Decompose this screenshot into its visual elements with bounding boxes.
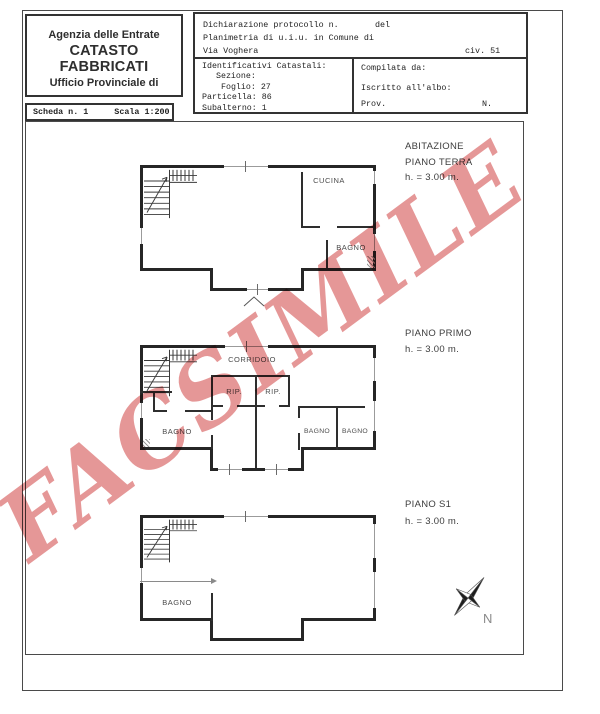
wall-segment xyxy=(140,165,143,228)
planimetria-label: Planimetria di u.i.u. in Comune di xyxy=(203,33,374,43)
sezione-field: Sezione: xyxy=(202,72,352,82)
window-tick xyxy=(229,464,230,475)
subalterno-field: Subalterno: 1 xyxy=(202,104,352,114)
wall-segment xyxy=(211,435,213,449)
wall-segment xyxy=(298,408,300,418)
protocol-label: Dichiarazione protocollo n. xyxy=(203,20,339,30)
floor-title-terra: ABITAZIONE PIANO TERRA h. = 3.00 m. xyxy=(405,139,473,186)
room-label-bagno-mid: BAGNO xyxy=(299,428,335,435)
stairs-icon xyxy=(143,168,197,220)
room-label-bagno-left: BAGNO xyxy=(157,427,197,436)
window-segment xyxy=(374,358,375,381)
street-name: Via Voghera xyxy=(203,46,258,56)
room-label-bagno-s1: BAGNO xyxy=(157,598,197,607)
floor-title-primo: PIANO PRIMO h. = 3.00 m. xyxy=(405,326,472,357)
floor-title-s1: PIANO S1 h. = 3.00 m. xyxy=(405,497,459,530)
iscritto-label: Iscritto all'albo: xyxy=(361,83,451,93)
agency-name: Agenzia delle Entrate xyxy=(27,29,181,41)
civic-number: civ. 51 xyxy=(465,45,500,58)
wall-segment xyxy=(140,515,224,518)
height-primo-label: h. = 3.00 m. xyxy=(405,342,472,358)
wall-segment xyxy=(237,405,255,407)
floor-plan-primo: CORRIDOIO RIP. RIP. BAGNO BAGNO BAGNO xyxy=(140,343,377,493)
wall-segment xyxy=(301,447,376,450)
n-label: N. xyxy=(482,99,492,109)
wall-segment xyxy=(211,375,213,420)
wall-segment xyxy=(301,268,304,291)
entrance-mark-icon xyxy=(243,296,265,307)
cadastral-document-page: Agenzia delle Entrate CATASTO FABBRICATI… xyxy=(0,0,600,714)
wall-segment xyxy=(140,391,172,393)
particella-field: Particella: 86 xyxy=(202,93,352,103)
wall-segment xyxy=(140,447,213,450)
floor-plan-s1: BAGNO xyxy=(140,513,377,663)
wall-segment xyxy=(210,288,247,291)
sheet-number-box: Scheda n. 1 Scala 1:200 xyxy=(25,103,174,121)
wall-segment xyxy=(213,375,290,377)
beam-line xyxy=(140,581,212,582)
room-label-bagno-right: BAGNO xyxy=(337,428,373,435)
wall-segment xyxy=(301,226,320,228)
wall-segment xyxy=(373,345,376,358)
wall-segment xyxy=(210,638,304,641)
wall-segment xyxy=(140,515,143,568)
wall-segment xyxy=(373,381,376,401)
window-segment xyxy=(218,469,242,470)
wall-segment xyxy=(268,515,376,518)
stairs-icon xyxy=(143,518,197,564)
wall-segment xyxy=(301,618,304,641)
prov-label: Prov. xyxy=(361,99,386,109)
compiler-box: Compilata da: Iscritto all'albo: Prov. N… xyxy=(354,59,526,114)
del-label: del xyxy=(375,19,390,32)
sheet-number: Scheda n. 1 xyxy=(33,107,88,117)
wall-segment xyxy=(242,468,265,471)
office-name: Ufficio Provinciale di xyxy=(27,77,181,89)
wall-segment xyxy=(210,468,218,471)
declaration-box: Dichiarazione protocollo n. del Planimet… xyxy=(193,12,528,114)
piano-primo-label: PIANO PRIMO xyxy=(405,326,472,342)
window-segment xyxy=(374,234,375,251)
window-tick xyxy=(245,161,246,172)
cadastral-ids-box: Identificativi Catastali: Sezione: Fogli… xyxy=(195,59,354,114)
wall-segment xyxy=(213,405,223,407)
compilata-label: Compilata da: xyxy=(361,63,426,73)
window-segment xyxy=(374,524,375,558)
room-label-rip-1: RIP. xyxy=(222,387,246,396)
wall-segment xyxy=(140,244,143,271)
wall-segment xyxy=(153,410,167,412)
window-segment xyxy=(374,171,375,184)
piano-s1-label: PIANO S1 xyxy=(405,497,459,514)
wall-segment xyxy=(301,618,376,621)
wall-segment xyxy=(268,165,376,168)
window-tick xyxy=(257,284,258,295)
wall-segment xyxy=(255,375,257,468)
window-segment xyxy=(374,401,375,431)
scale-label: Scala 1:200 xyxy=(114,107,169,117)
window-segment xyxy=(141,228,142,244)
wall-segment xyxy=(298,406,365,408)
wall-segment xyxy=(140,165,224,168)
window-segment xyxy=(224,516,268,517)
window-segment xyxy=(374,572,375,608)
window-tick xyxy=(245,511,246,522)
declaration-top: Dichiarazione protocollo n. del Planimet… xyxy=(195,14,526,59)
wall-segment xyxy=(185,410,213,412)
window-segment xyxy=(224,166,268,167)
wall-segment xyxy=(288,375,290,407)
height-s1-label: h. = 3.00 m. xyxy=(405,514,459,531)
wall-segment xyxy=(301,172,303,228)
wall-segment xyxy=(268,288,304,291)
cadastral-title: Identificativi Catastali: xyxy=(202,62,352,72)
wall-segment xyxy=(298,433,300,450)
room-label-rip-2: RIP. xyxy=(260,387,286,396)
room-label-bagno-terra: BAGNO xyxy=(328,243,374,252)
abitazione-label: ABITAZIONE xyxy=(405,139,473,155)
wall-segment xyxy=(140,345,225,348)
floor-plan-terra: CUCINA BAGNO xyxy=(140,163,377,313)
window-tick xyxy=(276,464,277,475)
wall-segment xyxy=(373,515,376,524)
north-label: N xyxy=(483,611,492,626)
wall-segment xyxy=(301,268,376,271)
wall-segment xyxy=(257,405,265,407)
wall-segment xyxy=(373,558,376,572)
wall-segment xyxy=(140,268,213,271)
wall-segment xyxy=(301,447,304,471)
wall-segment xyxy=(337,226,373,228)
catasto-title: CATASTO FABBRICATI xyxy=(27,43,181,75)
room-label-cucina: CUCINA xyxy=(307,176,351,185)
wall-segment xyxy=(268,345,376,348)
window-tick xyxy=(246,341,247,352)
height-terra-label: h. = 3.00 m. xyxy=(405,170,473,186)
window-segment xyxy=(141,403,142,418)
wall-segment xyxy=(140,583,143,621)
foglio-field: Foglio: 27 xyxy=(202,83,352,93)
wall-segment xyxy=(211,593,213,621)
agency-header-box: Agenzia delle Entrate CATASTO FABBRICATI… xyxy=(25,14,183,97)
piano-terra-label: PIANO TERRA xyxy=(405,155,473,171)
wall-segment xyxy=(279,405,290,407)
room-label-corridoio: CORRIDOIO xyxy=(220,355,284,364)
wall-segment xyxy=(373,184,376,234)
wall-segment xyxy=(140,618,213,621)
wall-segment xyxy=(140,345,143,403)
